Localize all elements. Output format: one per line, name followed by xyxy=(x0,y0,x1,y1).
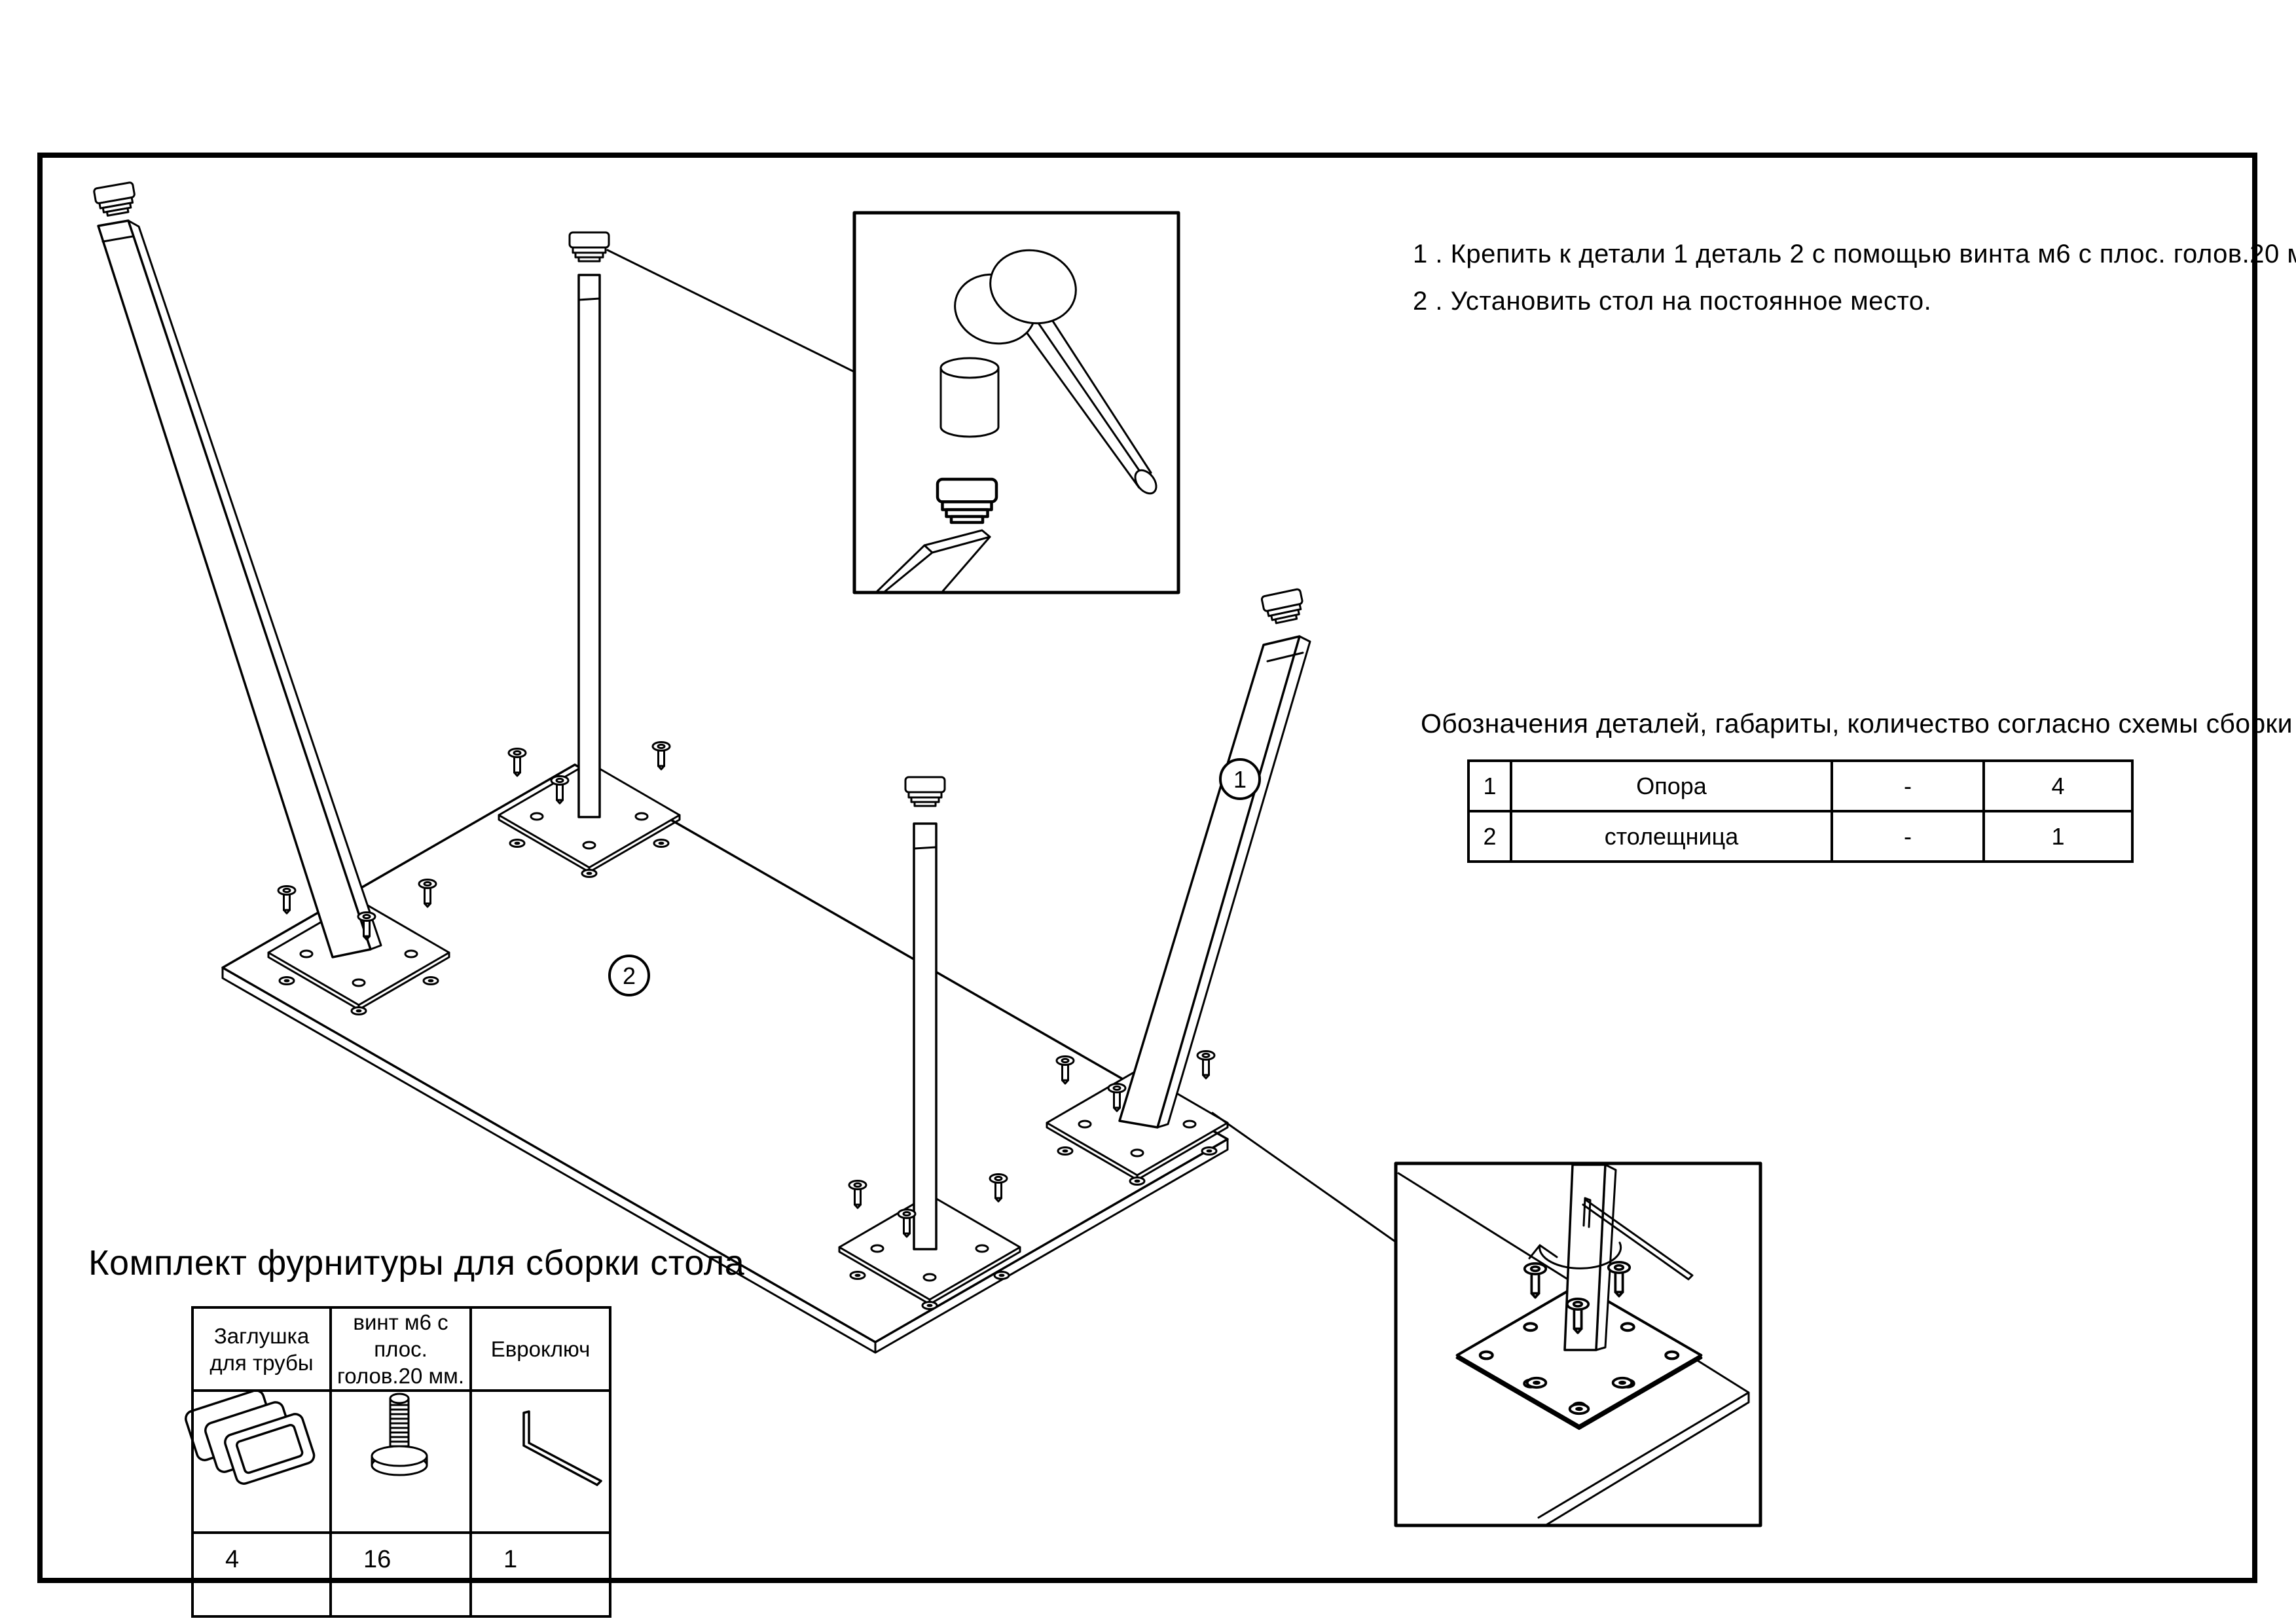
screw-cell xyxy=(331,1391,471,1533)
assembly-sheet: 2 1 xyxy=(0,0,2296,1623)
hex-key-cell xyxy=(471,1391,610,1533)
hardware-kit-header: Заглушка для трубы винт м6 с плос. голов… xyxy=(192,1307,610,1391)
tube-cap-cell xyxy=(192,1391,331,1533)
assembly-instructions: 1 . Крепить к детали 1 деталь 2 с помощь… xyxy=(1413,230,2277,325)
hardware-qty: 4 xyxy=(192,1533,331,1616)
part-number: 1 xyxy=(1468,761,1511,811)
hardware-kit-quantities: 4 16 1 xyxy=(192,1533,610,1616)
table-row: 1 Опора - 4 xyxy=(1468,761,2132,811)
parts-table: 1 Опора - 4 2 столещница - 1 xyxy=(1467,759,2134,863)
hardware-kit-pictures xyxy=(192,1391,610,1533)
parts-table-title: Обозначения деталей, габариты, количеств… xyxy=(1421,708,2259,739)
part-dims: - xyxy=(1832,761,1984,811)
hardware-qty: 16 xyxy=(331,1533,471,1616)
hardware-qty: 1 xyxy=(471,1533,610,1616)
part-dims: - xyxy=(1832,811,1984,862)
instruction-step-2: 2 . Установить стол на постоянное место. xyxy=(1413,278,2277,325)
hardware-kit-title: Комплект фурнитуры для сборки стола xyxy=(88,1243,744,1283)
table-row: 2 столещница - 1 xyxy=(1468,811,2132,862)
hardware-kit-table: Заглушка для трубы винт м6 с плос. голов… xyxy=(191,1306,611,1618)
hardware-label: Заглушка для трубы xyxy=(192,1307,331,1391)
part-qty: 4 xyxy=(1984,761,2132,811)
part-name: столещница xyxy=(1511,811,1832,862)
part-name: Опора xyxy=(1511,761,1832,811)
instruction-step-1: 1 . Крепить к детали 1 деталь 2 с помощь… xyxy=(1413,230,2277,278)
hardware-label: Евроключ xyxy=(471,1307,610,1391)
part-qty: 1 xyxy=(1984,811,2132,862)
hardware-label: винт м6 с плос. голов.20 мм. xyxy=(331,1307,471,1391)
part-number: 2 xyxy=(1468,811,1511,862)
